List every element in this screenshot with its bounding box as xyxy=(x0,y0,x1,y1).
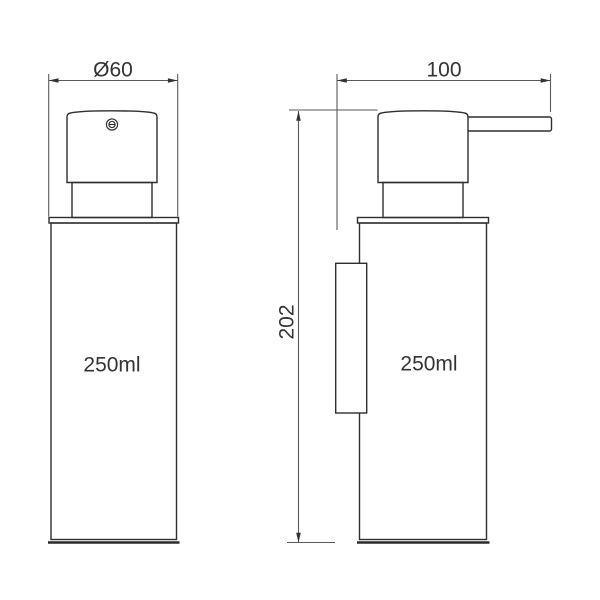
wall-mount-bracket xyxy=(336,263,367,413)
bottle-body-side xyxy=(360,223,487,540)
top-flange-front xyxy=(49,218,179,224)
front-volume-label: 250ml xyxy=(83,354,140,377)
pump-neck-front xyxy=(72,183,152,218)
front-view: Ø60 250ml xyxy=(48,59,180,543)
height-dimension-label: 202 xyxy=(276,304,299,339)
arrowhead-right xyxy=(168,78,178,83)
pump-head-side xyxy=(378,111,468,183)
pump-neck-side xyxy=(383,183,463,218)
dispenser-technical-drawing: Ø60 250ml xyxy=(0,0,600,600)
top-flange-side xyxy=(358,218,489,224)
bottle-body-front xyxy=(51,223,177,540)
arrowhead-left xyxy=(337,78,347,83)
technical-drawing-canvas: Ø60 250ml xyxy=(0,0,600,600)
depth-dimension-label: 100 xyxy=(426,59,461,82)
side-volume-label: 250ml xyxy=(400,353,457,376)
side-view: 100 202 xyxy=(276,59,552,543)
diameter-dimension-label: Ø60 xyxy=(93,59,133,82)
arrowhead-right xyxy=(541,78,551,83)
arrowhead-top xyxy=(296,111,301,121)
arrowhead-bottom xyxy=(296,533,301,543)
pump-spout xyxy=(466,117,552,131)
arrowhead-left xyxy=(49,78,59,83)
